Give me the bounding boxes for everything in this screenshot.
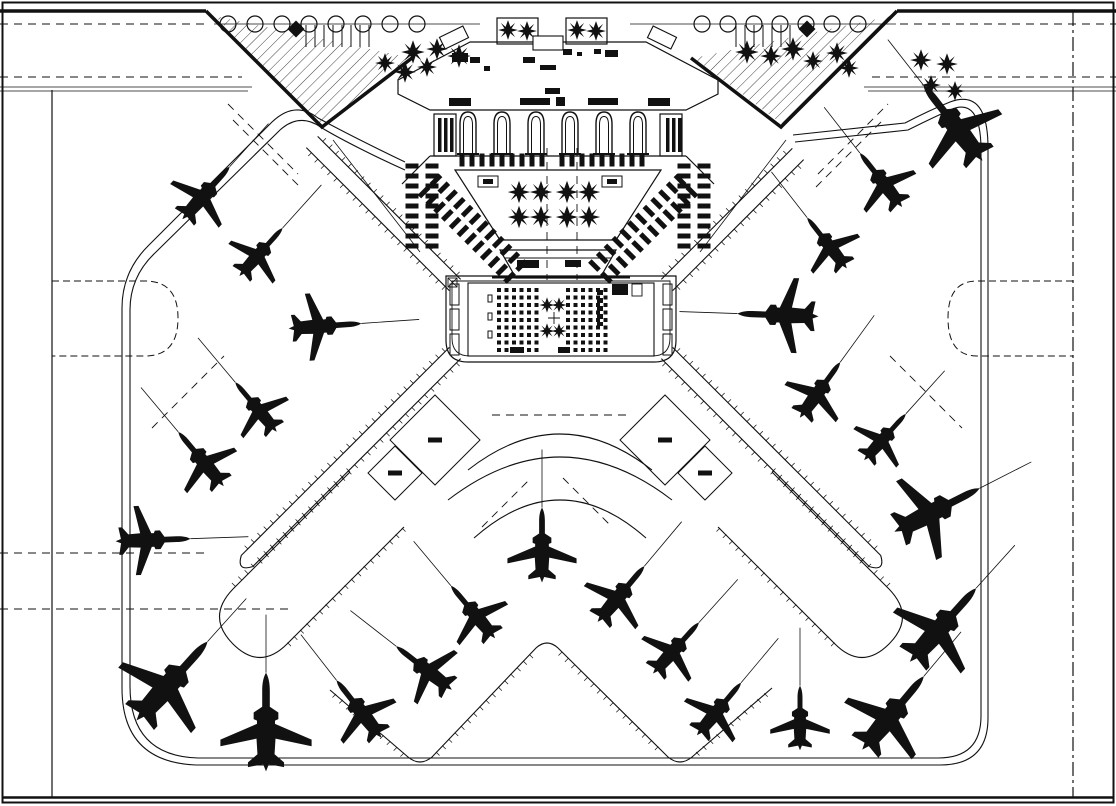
pier-tick <box>425 395 428 398</box>
edge-tick <box>767 579 771 583</box>
stand-lead-line <box>361 319 419 323</box>
seat-block <box>512 333 516 337</box>
seat-block <box>566 296 570 300</box>
parked-car-mark <box>630 154 635 167</box>
pier-tick <box>257 533 260 536</box>
seat-block <box>527 296 531 300</box>
seat-block <box>535 348 539 352</box>
parked-car-mark <box>510 154 515 167</box>
taxi-dash-line <box>228 104 298 174</box>
stand-lead-line <box>207 598 246 641</box>
pier-edge <box>661 359 869 567</box>
seat-block <box>512 303 516 307</box>
parked-car-mark <box>540 154 545 167</box>
gate-slab <box>663 284 672 305</box>
pier-tick <box>721 242 724 245</box>
pier-tick <box>353 197 356 200</box>
seat-block <box>566 318 570 322</box>
edge-tick <box>655 747 659 751</box>
pier-tick <box>270 520 273 523</box>
seat-block <box>581 326 585 330</box>
seat-block <box>604 303 608 307</box>
pier-tick <box>766 197 769 200</box>
seat-block <box>512 326 516 330</box>
pier-tick <box>842 514 845 517</box>
apron-envelope <box>122 99 988 765</box>
pier-tick <box>823 495 826 498</box>
pier-tick <box>399 420 402 423</box>
parked-car-mark <box>476 220 489 233</box>
pier-tick <box>745 446 748 449</box>
pier-tick <box>715 387 718 390</box>
seat-block <box>520 341 524 345</box>
parked-car-mark <box>588 259 601 272</box>
pier-tick <box>410 255 413 258</box>
taxi-dash-line <box>563 478 612 527</box>
pier-tick <box>764 170 767 173</box>
gate-slab <box>450 309 459 330</box>
pier-tip-wrap-se <box>718 472 903 658</box>
pier-tick <box>444 376 447 379</box>
edge-tick <box>825 636 829 640</box>
seat-block <box>527 341 531 345</box>
edge-tick <box>364 566 368 570</box>
pier-tick <box>785 178 788 181</box>
stand-lead-line <box>190 537 248 539</box>
seat-block <box>527 303 531 307</box>
parked-car-mark <box>662 209 675 222</box>
seat-block <box>589 333 593 337</box>
furniture-block <box>612 284 628 295</box>
pier-tick <box>696 267 699 270</box>
parked-car-mark <box>406 164 419 169</box>
stand-lead-line <box>680 312 738 314</box>
pier-tick <box>315 159 318 162</box>
seat-block <box>596 318 600 322</box>
colonnade-layer <box>457 112 649 154</box>
pier-tick <box>675 376 678 379</box>
parked-car-mark <box>616 256 629 269</box>
seat-block <box>497 296 501 300</box>
edge-tick <box>486 700 490 704</box>
parked-car-mark <box>445 189 458 202</box>
pier-tick <box>437 253 440 256</box>
furniture-block <box>594 49 601 54</box>
edge-ticks-layer <box>232 468 890 756</box>
furniture-block <box>648 98 670 106</box>
seat-block <box>497 288 501 292</box>
stand-lead-line <box>976 545 1015 588</box>
pier-tick <box>811 482 814 485</box>
seat-block <box>596 326 600 330</box>
pier-tick <box>425 240 428 243</box>
gate-slab <box>488 331 492 338</box>
seat-block <box>581 318 585 322</box>
gate-slab <box>450 334 459 355</box>
pier-tick <box>327 172 330 175</box>
edge-tick <box>629 721 633 725</box>
edge-tick <box>480 707 484 711</box>
pier-tick <box>372 418 375 421</box>
pier-tick <box>707 407 710 410</box>
edge-tick <box>716 528 720 532</box>
airplane-icon <box>507 508 576 583</box>
pier-tick <box>675 259 678 262</box>
equip-box-right <box>632 284 642 296</box>
pier-tick <box>423 267 426 270</box>
pier-tick <box>359 431 362 434</box>
pier-edge <box>253 359 461 567</box>
parked-car-mark <box>406 194 419 199</box>
colonnade-arch <box>627 112 649 154</box>
pier-tick <box>323 138 326 141</box>
palm-tree-icon <box>945 81 965 101</box>
seat-block <box>574 288 578 292</box>
parked-car-mark <box>698 164 711 169</box>
seat-block <box>574 311 578 315</box>
palm-tree-icon <box>530 181 553 204</box>
stand-lead-line <box>350 611 396 647</box>
parked-car-mark <box>640 154 645 167</box>
edge-tick <box>498 687 502 691</box>
palm-tree-icon <box>551 297 566 312</box>
seat-block <box>505 288 509 292</box>
seat-block <box>574 318 578 322</box>
palm-tree-icon <box>567 20 587 40</box>
seat-block <box>566 326 570 330</box>
pier-tick <box>861 533 864 536</box>
colonnade-wing-right <box>686 156 714 184</box>
airplane-icon <box>310 660 408 759</box>
stair-bar <box>450 118 454 152</box>
parked-car-mark <box>480 248 493 261</box>
seat-block <box>535 311 539 315</box>
airplane-icon <box>889 58 1018 188</box>
seat-block <box>581 303 585 307</box>
taxi-arc-1 <box>468 434 652 470</box>
edge-tick <box>294 636 298 640</box>
seat-block <box>581 296 585 300</box>
edge-tick <box>729 541 733 545</box>
edge-tick <box>616 709 620 713</box>
pier-tip-cap <box>869 555 882 568</box>
pier-tick <box>785 457 788 460</box>
seat-block <box>535 333 539 337</box>
pier-tick <box>431 388 434 391</box>
pier-tick <box>669 266 672 269</box>
seat-block <box>505 326 509 330</box>
edge-tick <box>511 674 515 678</box>
edge-tick <box>597 690 601 694</box>
seat-block <box>512 318 516 322</box>
pier-tick <box>734 406 737 409</box>
seat-block <box>520 288 524 292</box>
parked-car-mark <box>658 189 671 202</box>
stair-bar <box>444 118 448 152</box>
parked-car-mark <box>635 213 648 226</box>
pier-tick <box>289 501 292 504</box>
pier-tick <box>355 465 358 468</box>
stand-stop-mark <box>428 438 442 443</box>
pier-tick <box>374 189 377 192</box>
pier-tick <box>302 488 305 491</box>
edge-tick <box>332 598 336 602</box>
equip-x <box>448 278 457 287</box>
seat-block <box>604 341 608 345</box>
airplane-icon <box>427 565 520 658</box>
pier-tick <box>772 444 775 447</box>
pier-tick <box>418 401 421 404</box>
taxi-dash-line <box>233 120 300 187</box>
furniture-block <box>556 97 565 106</box>
seat-block <box>589 311 593 315</box>
pier-tick <box>340 185 343 188</box>
pier-tick <box>386 202 389 205</box>
furniture-block <box>484 66 490 71</box>
parked-car-mark <box>643 205 656 218</box>
edge-tick <box>812 623 816 627</box>
stand-lead-line <box>301 635 337 681</box>
parked-car-mark <box>406 234 419 239</box>
parked-car-mark <box>406 174 419 179</box>
parked-car-mark <box>449 217 462 230</box>
airplane-icon <box>876 558 1010 692</box>
seat-block <box>596 288 600 292</box>
parked-car-mark <box>437 181 450 194</box>
pier-tick <box>385 406 388 409</box>
edge-tick <box>887 583 891 587</box>
pier-tick <box>702 374 705 377</box>
parked-car-mark <box>406 184 419 189</box>
seat-block <box>566 311 570 315</box>
edge-tick <box>473 713 477 717</box>
pier-tick <box>817 488 820 491</box>
palm-tree-icon <box>781 37 804 60</box>
edge-tick <box>742 553 746 557</box>
edge-tick <box>723 534 727 538</box>
parked-car-mark <box>426 214 439 219</box>
gate-slab <box>488 313 492 320</box>
palm-tree-icon <box>508 181 531 204</box>
pier-tick <box>342 157 345 160</box>
pier-tick <box>804 476 807 479</box>
pier-tick <box>760 204 763 207</box>
pier-tick <box>701 401 704 404</box>
pier-tick <box>391 399 394 402</box>
pier-tick <box>442 286 445 289</box>
seat-block <box>604 296 608 300</box>
parked-car-mark <box>610 154 615 167</box>
seat-block <box>581 333 585 337</box>
edge-tick <box>571 665 575 669</box>
pier-edge <box>673 347 881 555</box>
stand-lead-line <box>283 185 322 228</box>
apron-edge-inner <box>130 107 981 758</box>
parked-car-mark <box>647 225 660 238</box>
furniture-block <box>452 53 468 62</box>
seat-block <box>596 348 600 352</box>
stand-lead-line <box>414 541 451 585</box>
pier-tick <box>386 433 389 436</box>
seat-block <box>527 318 531 322</box>
lead-in-lines <box>141 40 1031 686</box>
pier-tick <box>423 367 426 370</box>
pier-tick <box>374 446 377 449</box>
pier-tick <box>732 433 735 436</box>
edge-tick <box>351 579 355 583</box>
pier-tick <box>694 240 697 243</box>
seat-block <box>604 326 608 330</box>
parked-car-mark <box>472 240 485 253</box>
stair-bar <box>666 118 670 152</box>
pier-tick <box>726 208 729 211</box>
pier-tick <box>296 495 299 498</box>
pier-tick <box>436 355 439 358</box>
seat-block <box>581 288 585 292</box>
pier-tick <box>798 469 801 472</box>
edge-tick <box>780 592 784 596</box>
pier-tick <box>366 210 369 213</box>
palm-tree-icon <box>578 206 601 229</box>
pier-tick <box>321 469 324 472</box>
pier-tick <box>777 157 780 160</box>
stand-lead-line <box>980 462 1032 488</box>
palm-tree-icon <box>578 181 601 204</box>
pier-tick <box>734 229 737 232</box>
parked-car-mark <box>678 224 691 229</box>
parked-car-mark <box>698 204 711 209</box>
pier-tick <box>399 215 402 218</box>
pier-tick <box>783 151 786 154</box>
seat-block <box>581 341 585 345</box>
pier-tick <box>450 369 453 372</box>
furniture-block <box>545 88 560 94</box>
edge-tick <box>880 577 884 581</box>
edge-tick <box>345 585 349 589</box>
palm-tree-icon <box>508 206 531 229</box>
pier-tick <box>741 223 744 226</box>
parked-car-mark <box>650 197 663 210</box>
pier-tick <box>450 266 453 269</box>
edge-tick <box>517 668 521 672</box>
seat-block <box>520 333 524 337</box>
seat-block <box>505 341 509 345</box>
palm-tree-icon <box>401 40 424 63</box>
stair-bar <box>438 118 442 152</box>
seat-block <box>535 303 539 307</box>
seat-block <box>535 326 539 330</box>
parked-car-mark <box>488 256 501 269</box>
pier-tick <box>677 348 680 351</box>
pier-tick <box>732 202 735 205</box>
parked-car-mark <box>500 154 505 167</box>
pier-tip-wrap-sw <box>220 472 405 658</box>
pier-tick <box>378 412 381 415</box>
edge-tick <box>786 598 790 602</box>
edge-tick <box>578 671 582 675</box>
palm-tree-icon <box>936 53 958 75</box>
airplane-icon <box>158 145 254 241</box>
edge-tick <box>402 528 406 532</box>
pier-tick <box>681 253 684 256</box>
pier-tick <box>791 172 794 175</box>
edge-tick <box>339 700 343 704</box>
edge-tick <box>831 643 835 647</box>
seat-block <box>566 333 570 337</box>
parked-car-mark <box>530 154 535 167</box>
pier-tick <box>378 223 381 226</box>
pier-tick <box>276 514 279 517</box>
pier-tick <box>416 261 419 264</box>
gate-slab <box>488 295 492 302</box>
pier-tick <box>366 425 369 428</box>
parked-car-mark <box>600 154 605 167</box>
furniture-block <box>470 57 480 63</box>
airplane-icon <box>220 673 311 772</box>
stair-bar <box>678 118 682 152</box>
seat-block <box>497 303 501 307</box>
edge-tick <box>332 694 336 698</box>
colonnade-arch <box>457 112 479 154</box>
edge-tick <box>238 577 242 581</box>
furniture-block <box>563 49 572 55</box>
pier-tick <box>874 546 877 549</box>
edge-tick <box>623 715 627 719</box>
parked-car-mark <box>490 154 495 167</box>
pier-tick <box>404 248 407 251</box>
edge-tick <box>755 566 759 570</box>
pier-tick <box>694 395 697 398</box>
apron-edge-outer <box>122 99 988 765</box>
pier-tick <box>329 145 332 148</box>
pier-tick <box>688 388 691 391</box>
parked-car-mark <box>453 197 466 210</box>
pier-tick <box>683 280 686 283</box>
pier-tick <box>393 427 396 430</box>
seat-block <box>566 288 570 292</box>
seat-block <box>505 303 509 307</box>
pier-tick <box>412 407 415 410</box>
parked-car-mark <box>623 248 636 261</box>
edge-tick <box>636 728 640 732</box>
seat-block <box>566 348 570 352</box>
edge-tick <box>793 604 797 608</box>
gate-slab <box>663 334 672 355</box>
pier-tick <box>436 280 439 283</box>
parked-car-mark <box>620 154 625 167</box>
edge-tick <box>806 617 810 621</box>
airplane-icon <box>736 276 820 354</box>
pier-tick <box>393 208 396 211</box>
edge-tick <box>761 573 765 577</box>
pier-tick <box>690 361 693 364</box>
seat-block <box>574 341 578 345</box>
edge-tick <box>387 741 391 745</box>
seat-block <box>596 341 600 345</box>
palm-tree-icon <box>498 20 518 40</box>
palm-tree-icon <box>551 323 566 338</box>
pier-tick <box>760 431 763 434</box>
parked-car-mark <box>590 154 595 167</box>
pier-tick <box>367 452 370 455</box>
edge-tick <box>338 592 342 596</box>
pier-tick <box>321 165 324 168</box>
pier-tick <box>791 463 794 466</box>
airplane-icon <box>572 545 670 644</box>
pier-tick <box>855 527 858 530</box>
seat-block <box>505 296 509 300</box>
edge-tick <box>300 630 304 634</box>
